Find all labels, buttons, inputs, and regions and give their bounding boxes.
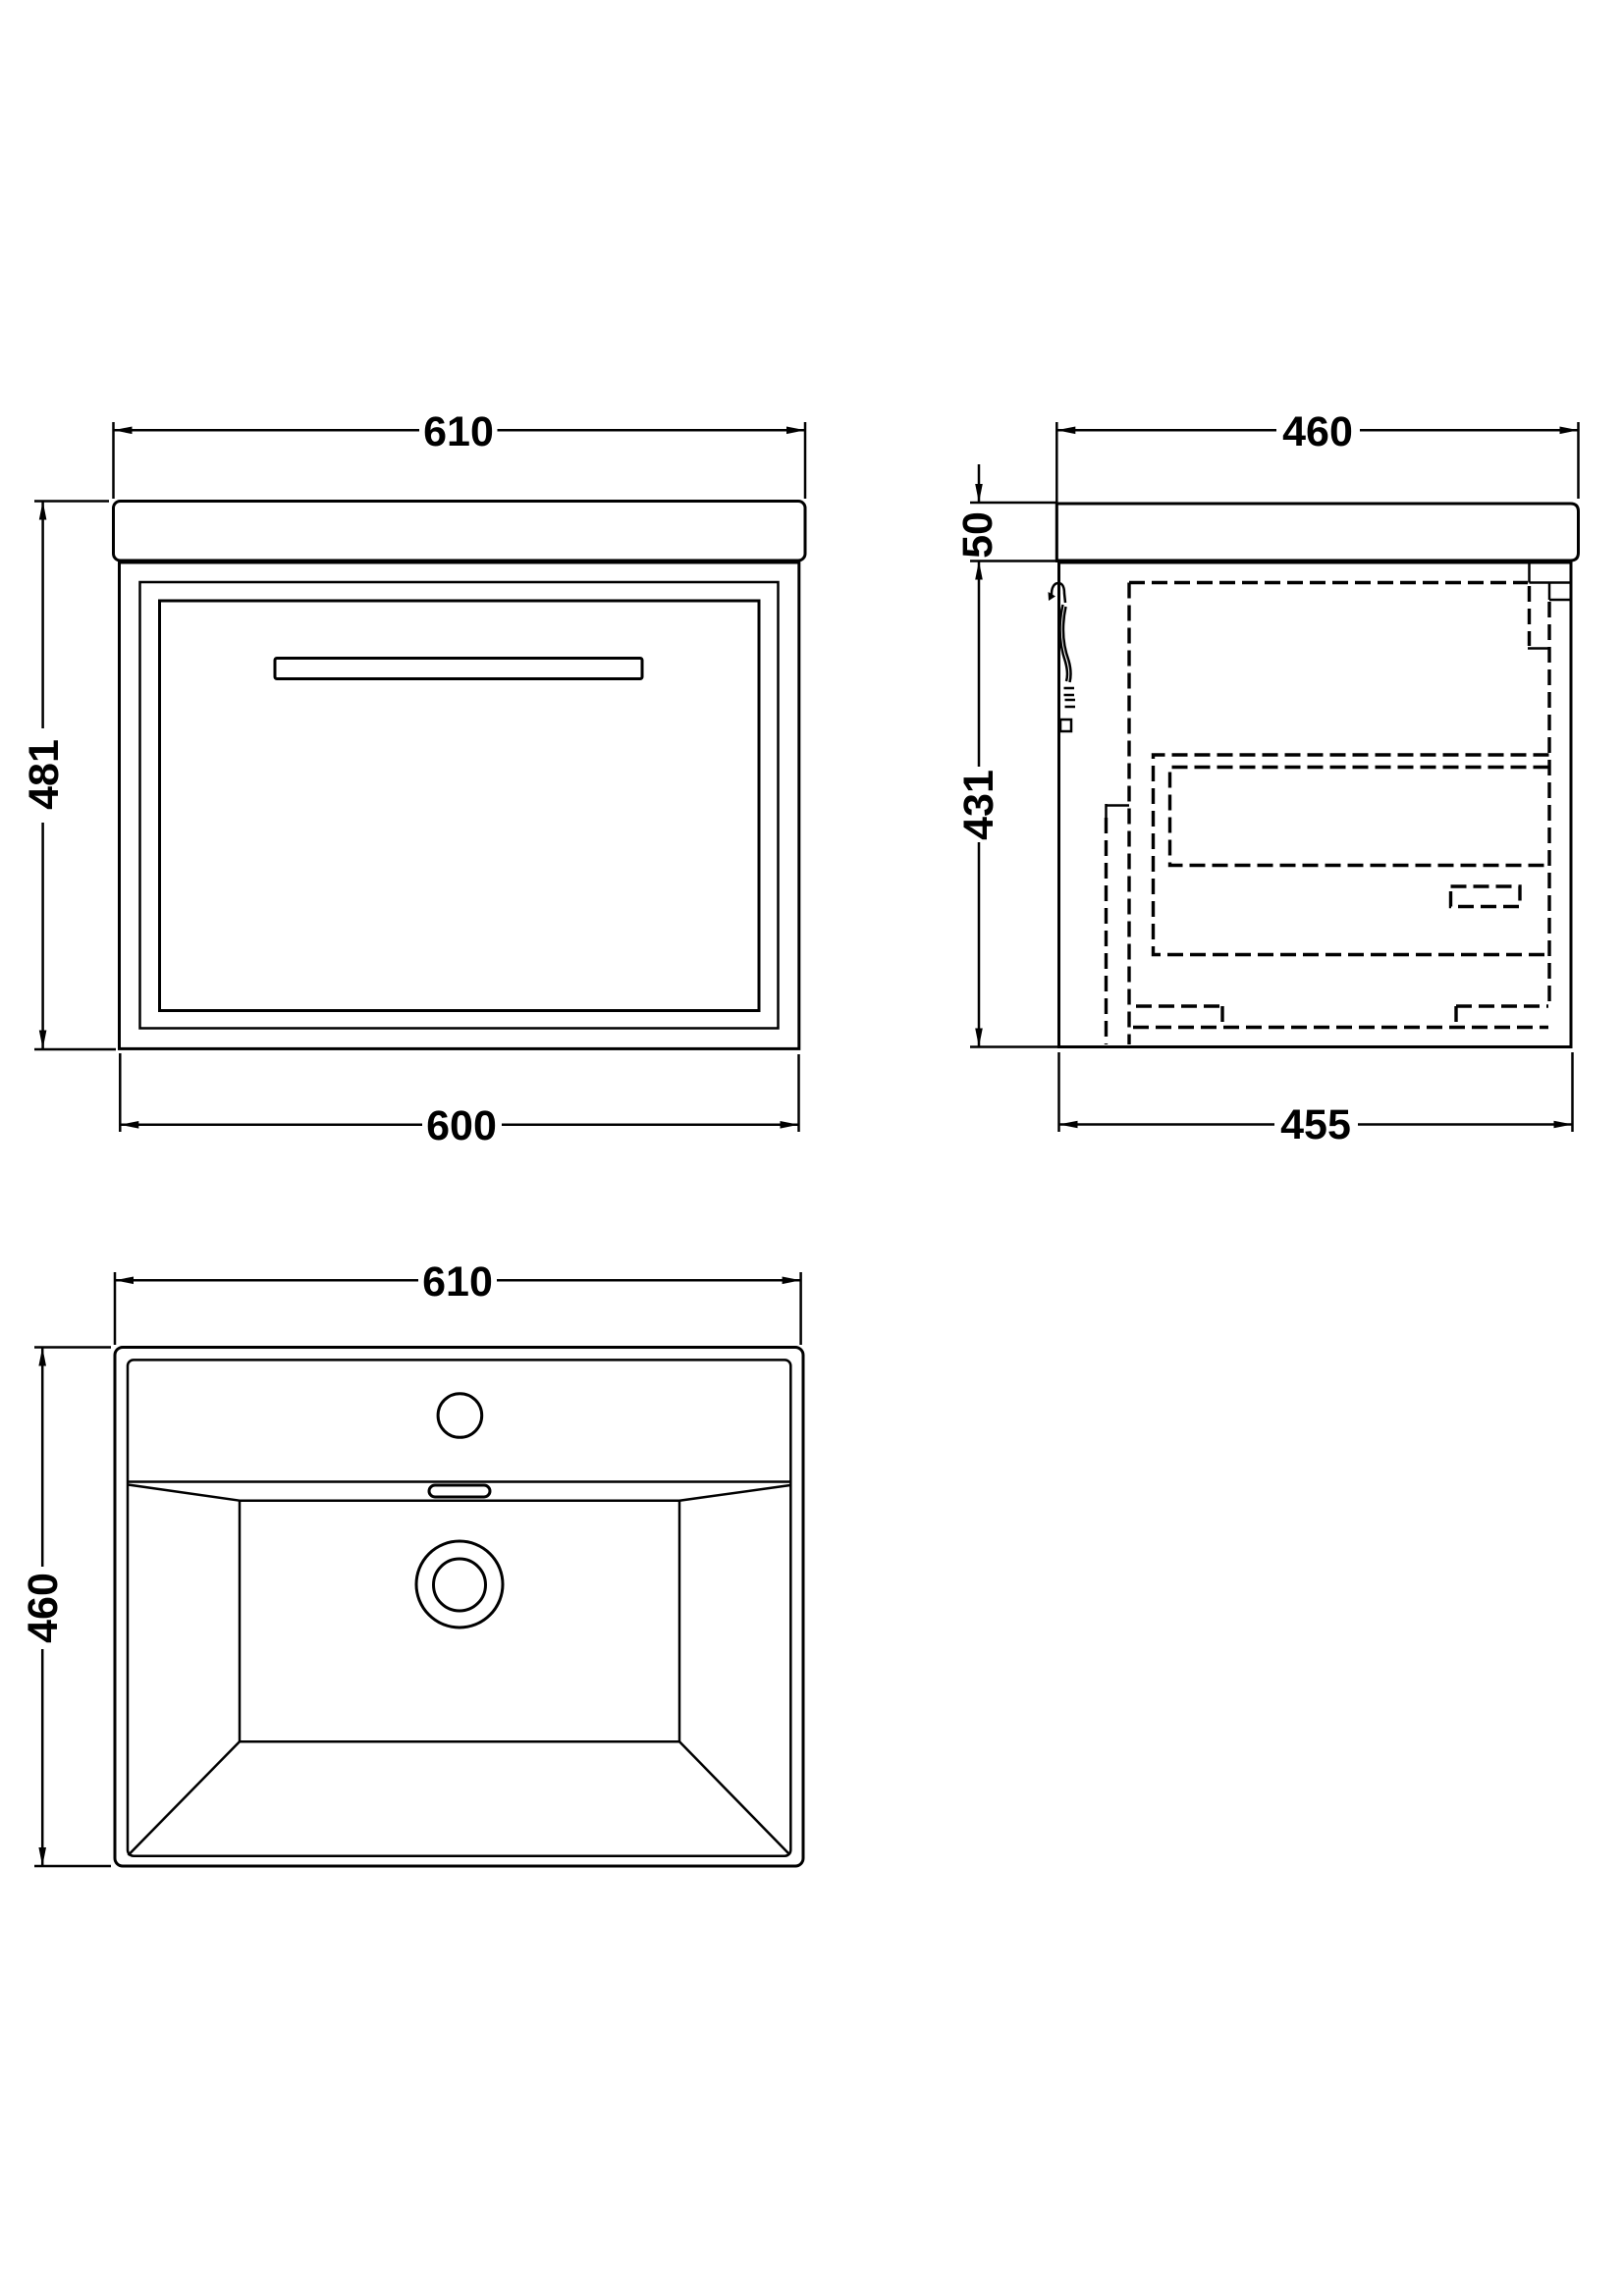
svg-text:610: 610 xyxy=(423,408,494,455)
svg-text:610: 610 xyxy=(422,1258,493,1306)
svg-text:431: 431 xyxy=(955,770,1002,840)
svg-text:600: 600 xyxy=(426,1102,497,1149)
svg-text:460: 460 xyxy=(1282,408,1353,455)
svg-text:50: 50 xyxy=(954,511,1001,559)
svg-text:455: 455 xyxy=(1280,1101,1351,1148)
svg-text:481: 481 xyxy=(21,739,68,810)
svg-text:460: 460 xyxy=(20,1573,67,1643)
